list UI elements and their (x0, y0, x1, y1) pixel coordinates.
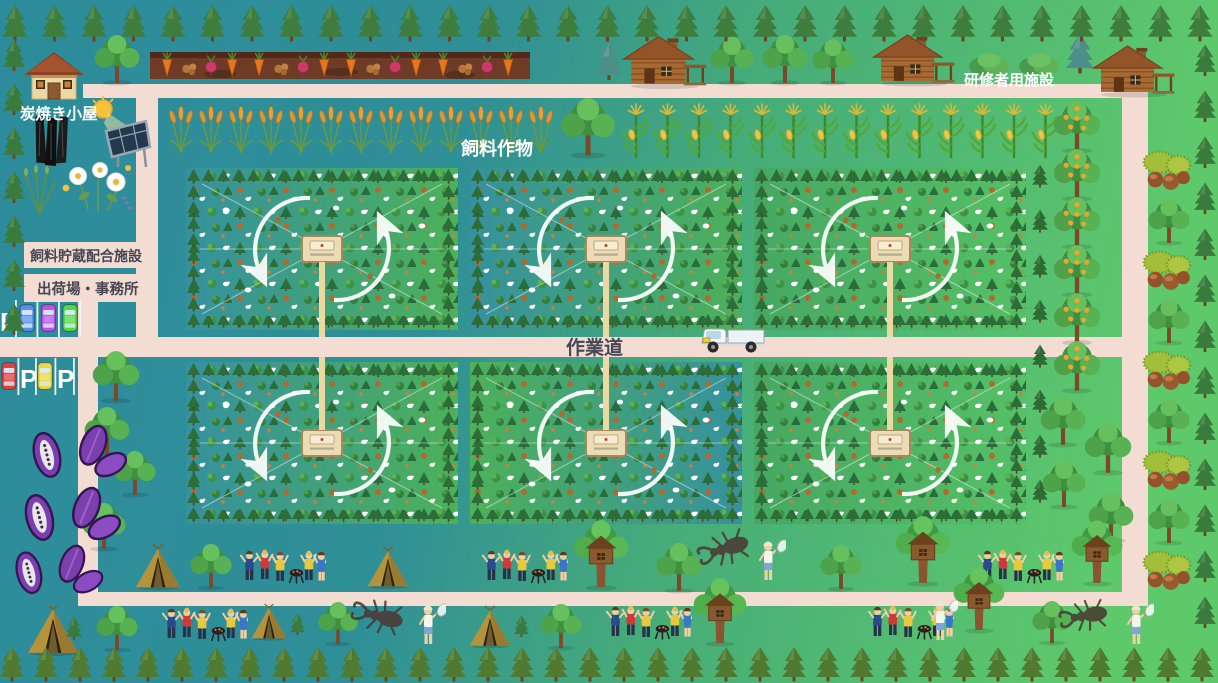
vegetable-bed (150, 52, 530, 79)
trainee-facility-label: 研修者用施設 (964, 71, 1055, 89)
parking-letter: P (57, 364, 74, 394)
chestnut-cluster (1144, 452, 1190, 490)
parking-letter: P (20, 364, 37, 394)
car-red (2, 363, 16, 390)
chestnut-cluster (1144, 352, 1190, 390)
farm-layout-map: P P P (0, 0, 1218, 683)
shipping-office-label: 出荷場・事務所 (37, 280, 139, 298)
chestnut-cluster (1144, 552, 1190, 590)
work-road-label: 作業道 (566, 336, 623, 359)
car-purple (41, 305, 55, 332)
feed-storage-label: 飼料貯蔵配合施設 (29, 248, 143, 264)
chestnut-cluster (1144, 252, 1190, 290)
charcoal-hut-label: 炭焼き小屋 (20, 105, 98, 123)
middle-work-road (0, 337, 1125, 357)
car-yellow (38, 363, 52, 390)
car-green (63, 305, 77, 332)
charcoal-sticks (32, 116, 71, 166)
chestnut-cluster (1144, 152, 1190, 190)
feed-crops-label: 飼料作物 (460, 138, 533, 159)
